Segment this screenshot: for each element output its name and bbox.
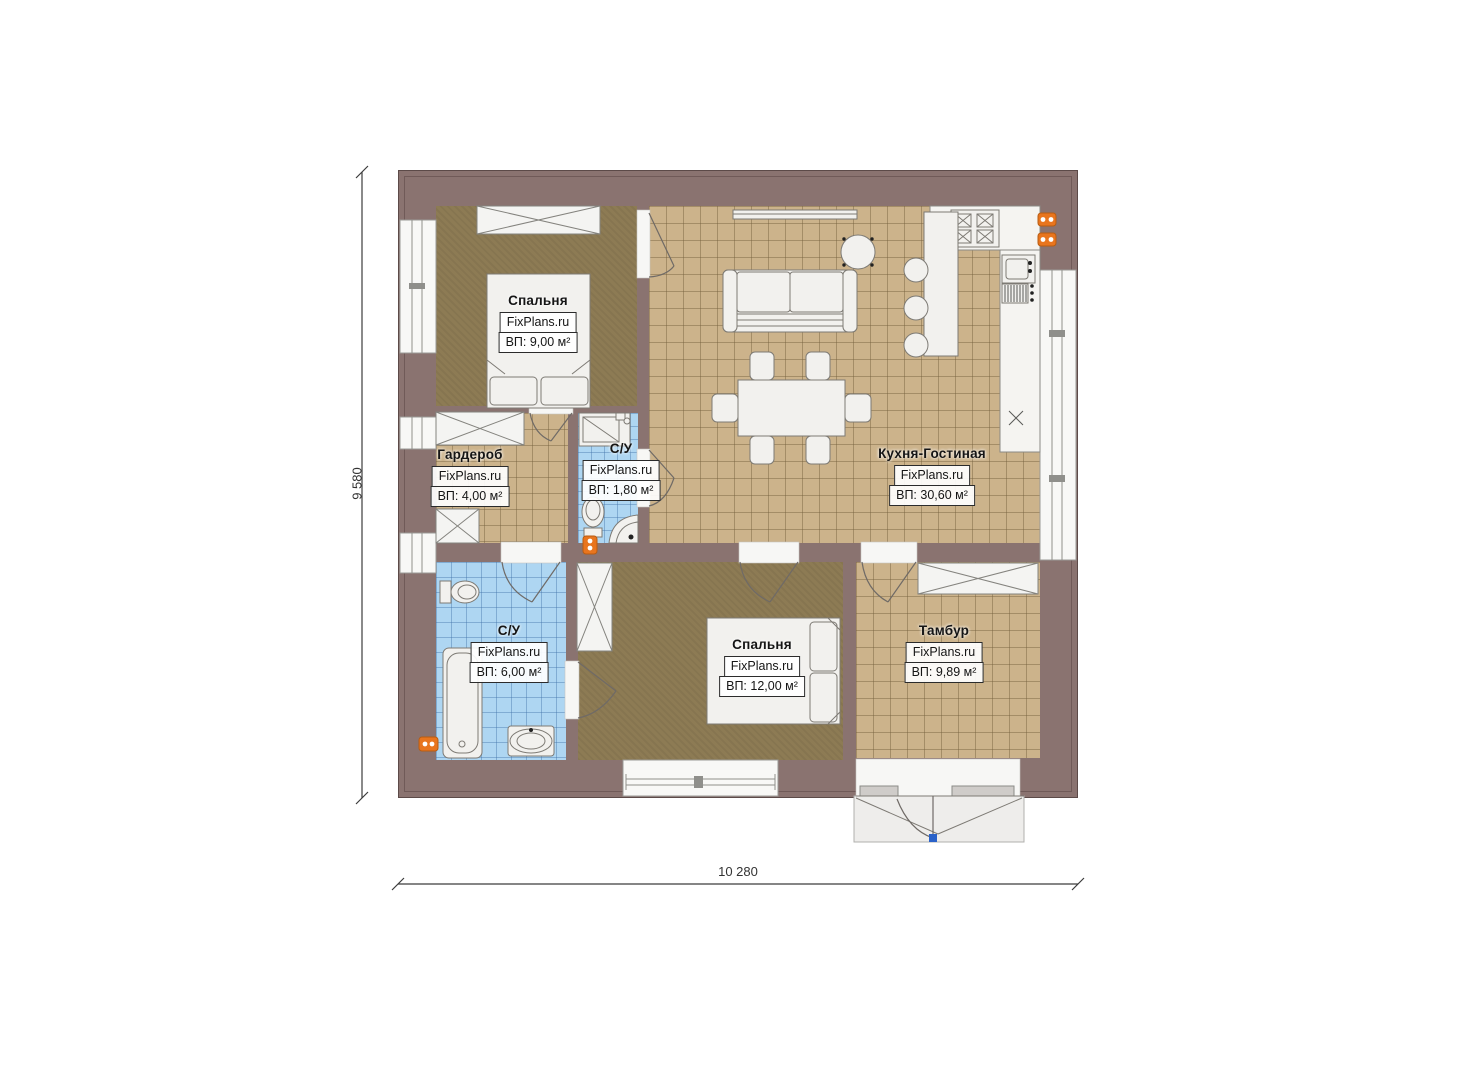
- window-wardrobe: [400, 417, 436, 449]
- window-bedroom-bottom: [623, 760, 778, 796]
- room-area: ВП: 12,00 м²: [719, 676, 805, 697]
- watermark: FixPlans.ru: [906, 642, 983, 663]
- room-label-bathroom: С/У FixPlans.ru ВП: 6,00 м²: [470, 623, 549, 683]
- watermark: FixPlans.ru: [471, 642, 548, 663]
- room-name: Спальня: [499, 293, 578, 308]
- kitchen-island-icon: [924, 212, 958, 356]
- shower-icon: [609, 515, 638, 543]
- dining-table-icon: [712, 352, 871, 464]
- room-name: Тамбур: [905, 623, 984, 638]
- door-bedroom-top: [649, 213, 674, 277]
- plan-drawing: [0, 0, 1474, 1080]
- radiator-icon-wc: [583, 536, 597, 554]
- entrance-door-handle: [929, 834, 937, 842]
- bar-stool-icon: [904, 258, 928, 357]
- watermark: FixPlans.ru: [894, 465, 971, 486]
- room-area: ВП: 9,89 м²: [905, 662, 984, 683]
- watermark: FixPlans.ru: [724, 656, 801, 677]
- window-living-right: [1040, 270, 1076, 560]
- radiator-icon-bathroom: [419, 737, 438, 751]
- sofa-icon: [723, 270, 857, 332]
- door-bathroom-bedroom: [578, 662, 616, 718]
- toilet-icon-small: [582, 497, 604, 537]
- window-bedroom-top: [400, 220, 436, 353]
- door-vestibule: [862, 562, 916, 602]
- kitchen-sink-icon: [1002, 255, 1035, 283]
- wardrobe-box-wardrobe-2: [436, 509, 479, 543]
- room-name: Кухня-Гостиная: [878, 446, 986, 461]
- room-label-bedroom-bottom: Спальня FixPlans.ru ВП: 12,00 м²: [719, 637, 805, 697]
- room-name: С/У: [470, 623, 549, 638]
- door-bedroom-bottom: [740, 562, 798, 602]
- room-area: ВП: 1,80 м²: [582, 480, 661, 501]
- room-name: Гардероб: [431, 447, 510, 462]
- watermark: FixPlans.ru: [432, 466, 509, 487]
- wardrobe-box-wardrobe-1: [436, 412, 524, 445]
- wardrobe-box-bedroom-top: [477, 206, 600, 234]
- floor-plan-canvas: Спальня FixPlans.ru ВП: 9,00 м² Гардероб…: [0, 0, 1474, 1080]
- room-area: ВП: 30,60 м²: [889, 485, 975, 506]
- washbasin-icon-bathroom: [508, 726, 554, 756]
- watermark: FixPlans.ru: [500, 312, 577, 333]
- radiator-icon-kitchen-1: [1038, 213, 1056, 226]
- room-area: ВП: 6,00 м²: [470, 662, 549, 683]
- wardrobe-box-vestibule: [918, 563, 1038, 594]
- wardrobe-box-bedroom-bottom: [577, 563, 612, 651]
- room-name: Спальня: [719, 637, 805, 652]
- window-bathroom: [400, 533, 436, 573]
- watermark: FixPlans.ru: [583, 460, 660, 481]
- room-label-bedroom-top: Спальня FixPlans.ru ВП: 9,00 м²: [499, 293, 578, 353]
- room-area: ВП: 9,00 м²: [499, 332, 578, 353]
- radiator-icon-kitchen-2: [1038, 233, 1056, 246]
- tv-icon: [733, 210, 857, 219]
- room-label-wc-small: С/У FixPlans.ru ВП: 1,80 м²: [582, 441, 661, 501]
- room-area: ВП: 4,00 м²: [431, 486, 510, 507]
- room-label-vestibule: Тамбур FixPlans.ru ВП: 9,89 м²: [905, 623, 984, 683]
- door-wardrobe: [530, 413, 572, 441]
- room-name: С/У: [582, 441, 661, 456]
- coffee-table-icon: [841, 235, 875, 269]
- dimension-height-label: 9 580: [350, 444, 365, 524]
- toilet-icon-bathroom: [440, 581, 479, 603]
- room-label-kitchen-living: Кухня-Гостиная FixPlans.ru ВП: 30,60 м²: [878, 446, 986, 506]
- dimension-width-label: 10 280: [688, 864, 788, 879]
- door-bathroom: [502, 562, 560, 602]
- room-label-wardrobe: Гардероб FixPlans.ru ВП: 4,00 м²: [431, 447, 510, 507]
